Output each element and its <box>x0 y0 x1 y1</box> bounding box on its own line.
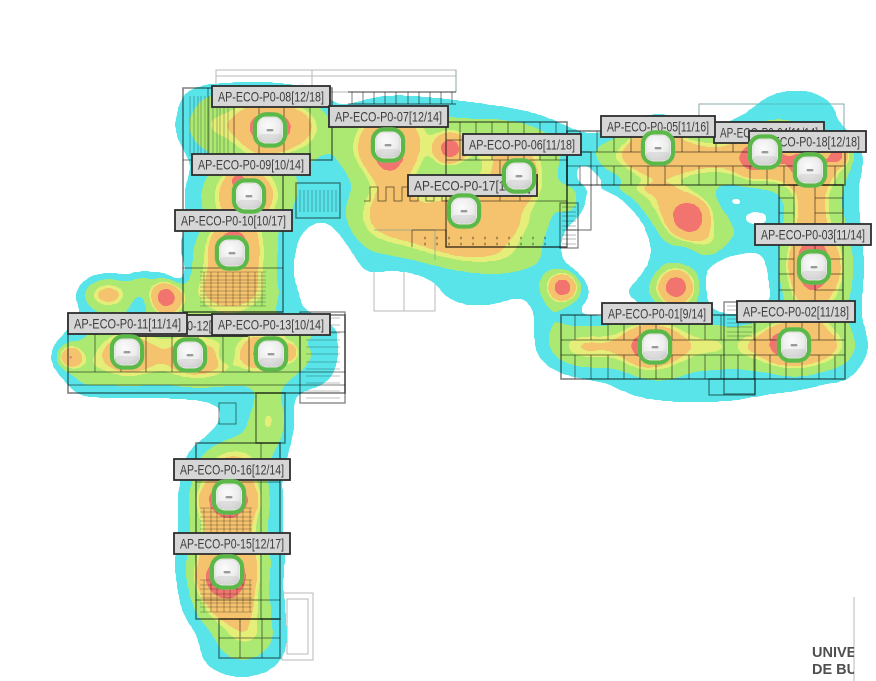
svg-text:AP-ECO-P0-03[11/14]: AP-ECO-P0-03[11/14] <box>761 227 865 243</box>
svg-text:AP-ECO-P0-13[10/14]: AP-ECO-P0-13[10/14] <box>218 317 324 333</box>
svg-text:AP-ECO-P0-06[11/18]: AP-ECO-P0-06[11/18] <box>469 137 575 153</box>
svg-text:AP-ECO-P0-01[9/14]: AP-ECO-P0-01[9/14] <box>608 306 706 322</box>
svg-text:AP-ECO-P0-15[12/17]: AP-ECO-P0-15[12/17] <box>180 536 284 552</box>
svg-text:AP-ECO-P0-16[12/14]: AP-ECO-P0-16[12/14] <box>180 462 284 478</box>
svg-text:AP-ECO-P0-02[11/18]: AP-ECO-P0-02[11/18] <box>743 304 849 320</box>
svg-text:AP-ECO-P0-10[10/17]: AP-ECO-P0-10[10/17] <box>181 213 286 229</box>
svg-text:AP-ECO-P0-11[11/14]: AP-ECO-P0-11[11/14] <box>74 316 181 332</box>
svg-text:AP-ECO-P0-08[12/18]: AP-ECO-P0-08[12/18] <box>218 89 324 105</box>
svg-text:AP-ECO-P0-07[12/14]: AP-ECO-P0-07[12/14] <box>335 109 442 125</box>
svg-text:AP-ECO-P0-09[10/14]: AP-ECO-P0-09[10/14] <box>198 157 304 173</box>
